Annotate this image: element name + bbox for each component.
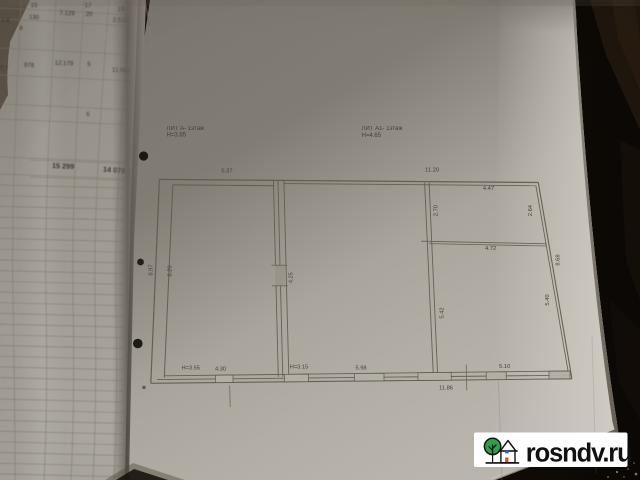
svg-text:rosndv.ru: rosndv.ru [526,440,632,468]
